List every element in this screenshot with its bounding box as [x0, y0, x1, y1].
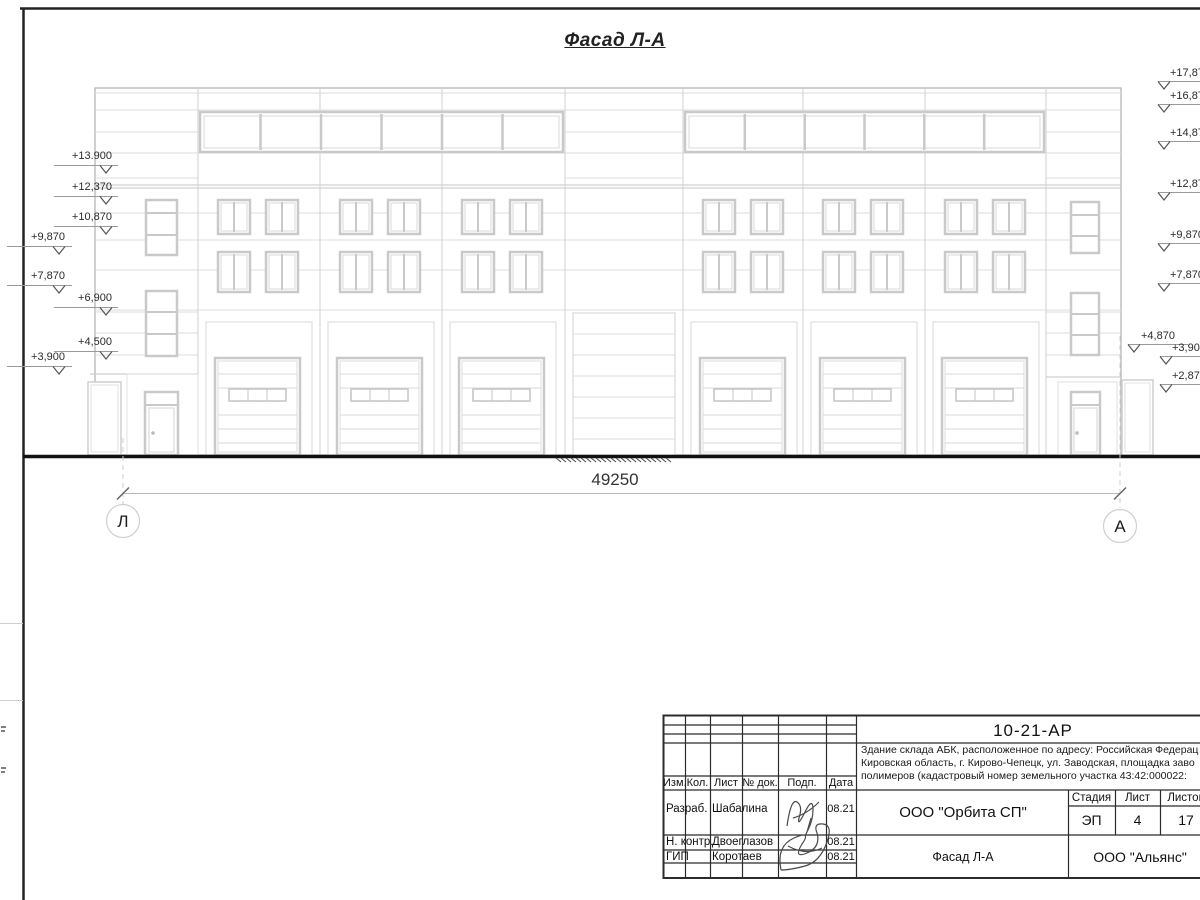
column-header-izm: Изм.: [663, 777, 685, 789]
elevation-label-left: +9,870: [5, 231, 65, 243]
dimension-value: 49250: [575, 470, 655, 490]
elevation-label-left: +12,370: [52, 181, 112, 193]
elevation-label-right: +4,870: [1141, 330, 1175, 342]
column-header-kol: Кол.: [685, 777, 710, 789]
role-label: ГИП: [666, 851, 689, 863]
elevation-label-right: +17,87: [1170, 67, 1200, 79]
axis-label-left: Л: [106, 512, 140, 532]
elevation-label-right: +12,87: [1170, 178, 1200, 190]
elevation-label-right: +2,870: [1172, 370, 1200, 382]
project-description-line: Здание склада АБК, расположенное по адре…: [861, 744, 1198, 758]
sheet-value: 4: [1115, 812, 1160, 828]
project-description-line: Кировская область, г. Кирово-Чепецк, ул.…: [861, 757, 1195, 771]
elevation-label-right: +9,870: [1170, 229, 1200, 241]
sheet-title: Фасад Л-А: [858, 850, 1068, 864]
elevation-label-left: +10,870: [52, 211, 112, 223]
sheets-label: Листов: [1160, 792, 1200, 804]
elevation-label-right: +7,870: [1170, 269, 1200, 281]
elevation-label-right: +3,900: [1172, 342, 1200, 354]
column-header-podp: Подп.: [778, 777, 826, 789]
role-label: Н. контр.: [666, 836, 713, 848]
building-facade: [88, 88, 1153, 455]
axis-label-right: А: [1103, 517, 1137, 537]
person-name: Двоеглазов: [712, 836, 773, 848]
elevation-label-left: +6,900: [52, 292, 112, 304]
sheet-label: Лист: [1115, 792, 1160, 804]
person-name: Коротаев: [712, 851, 762, 863]
column-header-data: Дата: [826, 777, 856, 789]
elevation-label-left: +3,900: [5, 351, 65, 363]
column-header-list: Лист: [710, 777, 742, 789]
signature-icon: [780, 802, 829, 871]
column-header-doc: № док.: [742, 777, 778, 789]
stage-value: ЭП: [1068, 812, 1115, 828]
stage-label: Стадия: [1068, 792, 1115, 804]
date-value: 08.21: [826, 851, 856, 863]
project-description-line: полимеров (кадастровый номер земельного …: [861, 770, 1187, 784]
person-name: Шабалина: [712, 803, 768, 815]
elevation-label-left: +13.900: [52, 150, 112, 162]
elevation-label-left: +4,500: [52, 336, 112, 348]
elevation-label-right: +16,87: [1170, 90, 1200, 102]
contractor-name: ООО "Альянс": [1070, 849, 1200, 865]
elevation-label-left: +7,870: [5, 270, 65, 282]
drawing-sheet: Фасад Л-А +13.900 +12,370 +10,870 +9,870…: [0, 0, 1200, 900]
date-value: 08.21: [826, 803, 856, 815]
date-value: 08.21: [826, 836, 856, 848]
sheets-value: 17: [1160, 812, 1200, 828]
elevation-label-right: +14,87: [1170, 127, 1200, 139]
organization-name: ООО "Орбита СП": [858, 804, 1068, 821]
drawing-title: Фасад Л-А: [465, 30, 765, 52]
ground-line: [23, 457, 1200, 463]
document-code: 10-21-АР: [856, 721, 1200, 741]
role-label: Разраб.: [666, 803, 707, 815]
middle-recess-panel: [573, 313, 675, 455]
